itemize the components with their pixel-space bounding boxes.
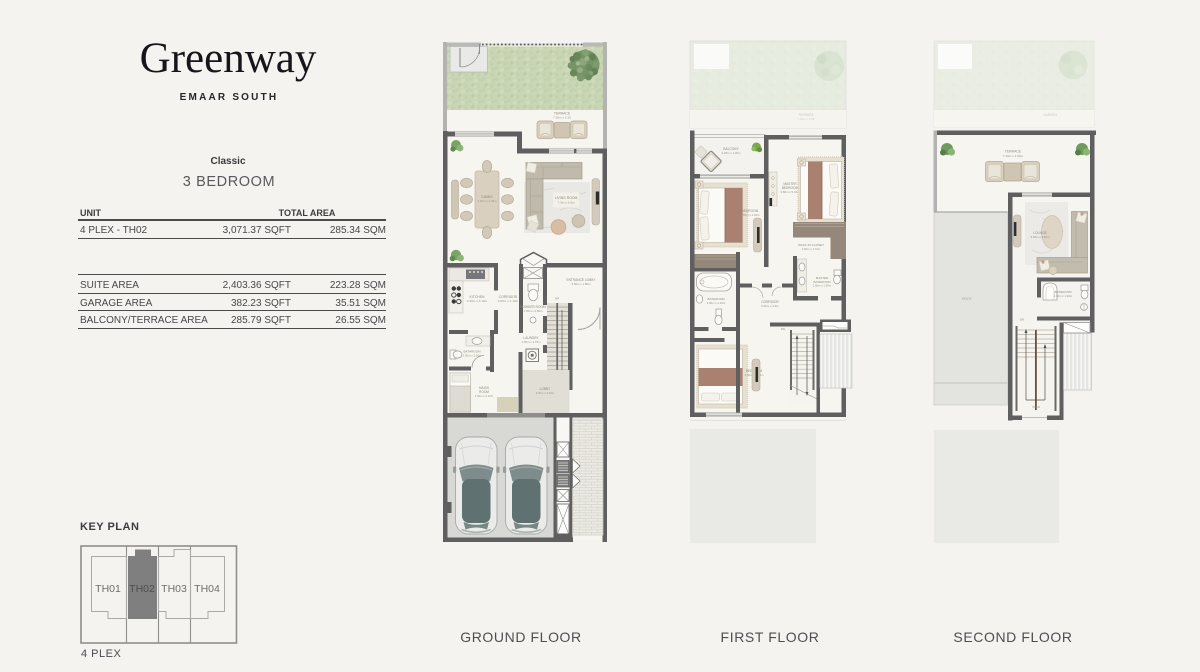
svg-text:7.30m x 4.60m: 7.30m x 4.60m — [1003, 154, 1024, 158]
svg-text:TH03: TH03 — [161, 583, 187, 595]
svg-text:2.00m x 2.20m: 2.00m x 2.20m — [707, 301, 726, 305]
svg-text:1.55m x 1.75m: 1.55m x 1.75m — [521, 340, 541, 344]
svg-text:TH02: TH02 — [129, 583, 155, 595]
svg-text:TH04: TH04 — [194, 583, 220, 595]
svg-text:3.40m x 3.10m: 3.40m x 3.10m — [467, 299, 488, 303]
svg-text:3.50m x 1.80m: 3.50m x 1.80m — [571, 282, 591, 286]
svg-text:UP: UP — [555, 297, 559, 301]
svg-text:TH01: TH01 — [95, 583, 121, 595]
svg-text:STAIR: STAIR — [1032, 405, 1040, 409]
svg-text:LIVING ROOM: LIVING ROOM — [555, 196, 578, 200]
svg-text:0.90m x 3.9m: 0.90m x 3.9m — [761, 304, 779, 308]
svg-text:7.30m x 1.55: 7.30m x 1.55 — [553, 116, 571, 120]
svg-text:4.80m x 1.10m: 4.80m x 1.10m — [498, 299, 519, 303]
svg-text:2.28m x 1.45m: 2.28m x 1.45m — [721, 151, 741, 155]
svg-text:7.30m x 1.55: 7.30m x 1.55 — [798, 117, 815, 121]
svg-text:3.25m x 2.30m: 3.25m x 2.30m — [477, 199, 497, 203]
svg-text:2.30m x 2.10m: 2.30m x 2.10m — [475, 394, 494, 398]
svg-text:2.60m x 1.90m: 2.60m x 1.90m — [813, 284, 832, 288]
svg-text:3.56m x 4.65m: 3.56m x 4.65m — [1030, 235, 1050, 239]
svg-text:1.55m x 2.60m: 1.55m x 2.60m — [523, 309, 543, 313]
svg-text:DN: DN — [781, 327, 785, 331]
svg-text:GARDEN: GARDEN — [1043, 113, 1057, 117]
svg-text:2.00m x 2.30m: 2.00m x 2.30m — [536, 391, 555, 395]
svg-text:7.3m x 3.8m: 7.3m x 3.8m — [557, 201, 574, 205]
svg-text:2.00m x 1.90m: 2.00m x 1.90m — [1054, 294, 1073, 298]
svg-text:3.60m x 4.20m: 3.60m x 4.20m — [740, 213, 760, 217]
svg-text:2.60m x 1.70m: 2.60m x 1.70m — [802, 247, 821, 251]
svg-text:ROOF: ROOF — [962, 297, 972, 301]
svg-text:DN: DN — [1020, 318, 1024, 322]
svg-text:3.80m x 5.10m: 3.80m x 5.10m — [780, 190, 800, 194]
